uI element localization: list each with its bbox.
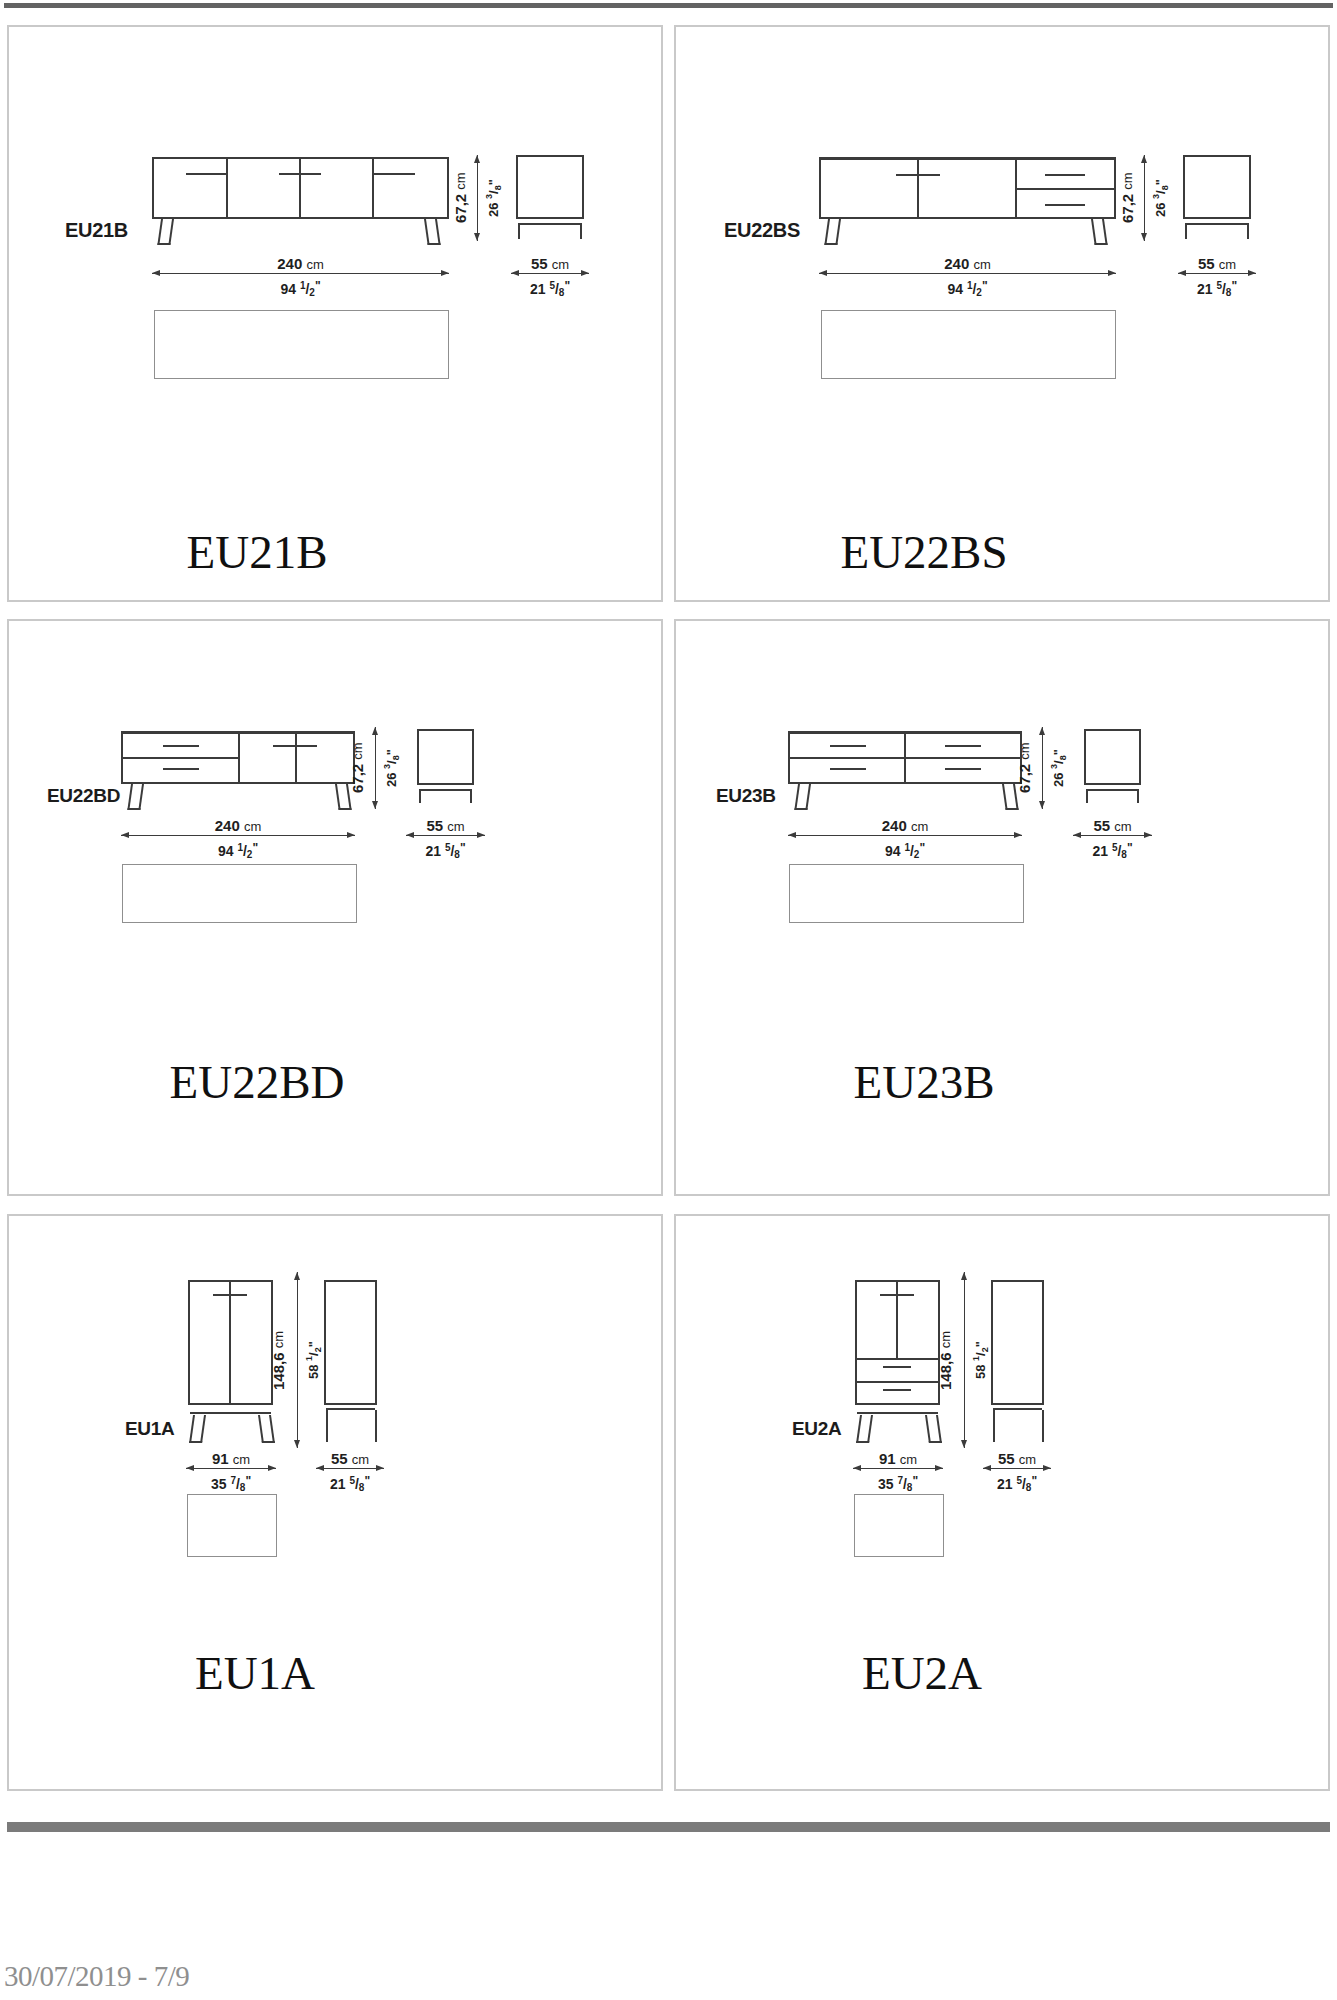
side-base-rail [518,223,582,225]
depth-dimension-inches: 21 5/8" [408,841,483,860]
door-handle [279,173,321,175]
frac-den: 8 [391,755,401,760]
height-unit: cm [453,173,468,190]
side-base-rail [1185,223,1249,225]
width-value: 240 [944,255,969,272]
side-leg [1185,225,1187,239]
frac-den: 8 [1058,755,1068,760]
drawer-divider [1017,188,1114,190]
inch-mark: " [1031,1474,1037,1488]
height-dimension-inches: 26 3/8" [1050,727,1068,809]
door-divider [372,159,374,217]
drawer-handle [883,1389,911,1391]
product-name: EU22BS [744,525,1104,579]
width-value-in: 94 [885,843,901,859]
depth-value: 55 [998,1450,1015,1467]
depth-dimension-inches: 21 5/8" [982,1474,1052,1493]
height-value: 67,2 [1119,194,1136,223]
side-view-drawing [991,1280,1044,1405]
height-dimension-inches: 26 3/8" [485,155,503,241]
height-value: 148,6 [937,1352,954,1390]
depth-value: 55 [331,1450,348,1467]
side-view-drawing [516,155,584,219]
top-view-outline [187,1494,277,1557]
furniture-leg [127,784,144,810]
frac-den: 8 [493,185,503,190]
drawer-handle [830,745,866,747]
drawer-divider [857,1358,938,1360]
base-rail [190,1412,271,1414]
depth-value: 55 [426,817,443,834]
width-dimension-line [186,1468,276,1469]
depth-dimension-line [406,835,485,836]
height-unit: cm [271,1330,286,1347]
drawer-handle [1045,204,1085,206]
width-unit: cm [244,819,261,834]
width-dimension-inches: 94 1/2" [121,841,355,860]
width-value-in: 94 [218,843,234,859]
height-unit: cm [1017,743,1032,760]
drawer-divider [790,757,1020,759]
frac-den: 2 [313,1347,323,1352]
door-handle [213,1294,247,1296]
depth-dimension-line [1178,273,1256,274]
drawer-divider [123,757,239,759]
height-value: 67,2 [1016,764,1033,793]
width-dimension-inches: 35 7/8" [853,1474,943,1493]
width-dimension-inches: 35 7/8" [186,1474,276,1493]
height-value: 67,2 [452,194,469,223]
spec-cell-eu21b: EU21B 67,2 cm 26 3/8" 240 cm 94 1/2" [7,25,663,602]
height-dimension-cm: 148,6 cm [938,1272,958,1448]
width-value: 91 [879,1450,896,1467]
depth-value-in: 21 [530,281,546,297]
width-dimension-cm: 240 cm [788,817,1022,834]
side-leg [375,1410,377,1442]
height-dimension-line [1042,727,1043,809]
height-dimension-line [297,1272,298,1448]
width-dimension-line [121,835,355,836]
base-rail [857,1412,938,1414]
inch-mark: " [245,1474,251,1488]
drawer-handle [883,1366,911,1368]
side-leg [326,1410,328,1442]
width-value-in: 94 [280,281,296,297]
height-dimension-cm: 67,2 cm [1017,727,1037,809]
depth-unit: cm [1114,819,1131,834]
width-unit: cm [911,819,928,834]
front-view-drawing [855,1280,940,1405]
depth-value-in: 21 [1092,843,1108,859]
side-leg [1086,791,1088,803]
frac-num: 3 [484,194,494,199]
width-dimension-inches: 94 1/2" [152,279,449,298]
height-dimension-line [375,727,376,809]
furniture-leg [424,219,441,245]
inch-mark: " [315,279,321,293]
front-view-drawing [152,157,449,219]
depth-value: 55 [1198,255,1215,272]
height-dimension-inches: 58 1/2" [972,1272,990,1448]
product-code-label: EU2A [792,1418,841,1440]
product-name: EU1A [75,1646,435,1700]
inch-mark: " [919,841,925,855]
footer-page-info: 30/07/2019 - 7/9 [4,1960,189,1993]
product-name: EU22BD [77,1055,437,1109]
front-view-drawing [188,1280,273,1405]
drawer-handle [945,745,981,747]
depth-dimension-inches: 21 5/8" [1075,841,1150,860]
height-dimension-line [1144,155,1145,241]
drawer-handle [1045,174,1085,176]
furniture-leg [1091,219,1108,245]
furniture-leg [794,784,811,810]
depth-dimension-cm: 55 cm [315,1450,385,1467]
width-value: 240 [215,817,240,834]
width-unit: cm [900,1452,917,1467]
width-dimension-line [819,273,1116,274]
depth-value-in: 21 [425,843,441,859]
depth-dimension-line [1073,835,1152,836]
inch-mark: " [1231,279,1237,293]
side-base-rail [1086,789,1139,791]
height-value-in: 26 [1051,773,1066,787]
drawer-handle [945,768,981,770]
frac-slash: / [1051,760,1066,764]
door-divider [229,1282,231,1403]
top-view-outline [154,310,449,379]
depth-dimension-line [316,1468,384,1469]
top-divider-bar [4,3,1333,8]
frac-den: 8 [1160,185,1170,190]
depth-value: 55 [1093,817,1110,834]
catalog-page: EU21B 67,2 cm 26 3/8" 240 cm 94 1/2" [0,0,1337,2000]
door-divider [917,160,919,217]
width-dimension-cm: 240 cm [152,255,449,272]
inch-mark: " [1051,749,1066,755]
door-handle [880,1294,914,1296]
frac-num: 1 [304,1356,314,1361]
inch-mark: " [364,1474,370,1488]
product-name: EU23B [744,1055,1104,1109]
spec-cell-eu23b: EU23B 67,2 cm 26 3/8" 240 cm 94 1/2" [674,619,1330,1196]
door-handle [186,173,227,175]
width-value: 240 [277,255,302,272]
depth-unit: cm [352,1452,369,1467]
width-dimension-inches: 94 1/2" [819,279,1116,298]
inch-mark: " [912,1474,918,1488]
height-value: 148,6 [270,1352,287,1390]
inch-mark: " [306,1341,321,1347]
width-value-in: 35 [211,1476,227,1492]
furniture-leg [157,219,174,245]
furniture-leg [856,1415,873,1443]
spec-cell-eu22bd: EU22BD 67,2 cm 26 3/8" 240 cm 94 1/2" [7,619,663,1196]
side-leg [518,225,520,239]
depth-dimension-cm: 55 cm [982,1450,1052,1467]
door-divider [295,734,297,782]
width-dimension-line [853,1468,943,1469]
product-code-label: EU23B [716,785,776,807]
frac-num: 3 [1049,764,1059,769]
height-unit: cm [938,1330,953,1347]
frac-slash: / [973,1352,988,1356]
height-value-in: 26 [1153,203,1168,217]
inch-mark: " [982,279,988,293]
product-code-label: EU1A [125,1418,174,1440]
depth-dimension-cm: 55 cm [513,255,587,272]
frac-slash: / [384,760,399,764]
side-leg [1247,225,1249,239]
depth-unit: cm [1219,257,1236,272]
height-value-in: 58 [973,1365,988,1379]
width-dimension-cm: 91 cm [186,1450,276,1467]
depth-dimension-inches: 21 5/8" [513,279,587,298]
product-code-label: EU22BS [724,219,800,242]
depth-value-in: 21 [330,1476,346,1492]
top-view-outline [789,864,1024,923]
drawer-handle [163,745,199,747]
width-dimension-line [152,273,449,274]
front-view-drawing [121,731,355,784]
height-value-in: 58 [306,1365,321,1379]
door-handle [374,173,415,175]
width-dimension-cm: 91 cm [853,1450,943,1467]
height-value-in: 26 [486,203,501,217]
spec-cell-eu22bs: EU22BS 67,2 cm 26 3/8" 240 cm 94 1/2" [674,25,1330,602]
furniture-leg [824,219,841,245]
side-view-drawing [417,729,474,785]
footer-divider-bar [7,1822,1330,1832]
door-handle [273,745,317,747]
front-view-drawing [788,731,1022,784]
side-view-drawing [1084,729,1141,785]
width-dimension-cm: 240 cm [819,255,1116,272]
width-unit: cm [233,1452,250,1467]
inch-mark: " [460,841,466,855]
depth-dimension-line [511,273,589,274]
width-value-in: 94 [947,281,963,297]
width-value: 91 [212,1450,229,1467]
product-name: EU21B [77,525,437,579]
height-dimension-cm: 67,2 cm [350,727,370,809]
height-dimension-inches: 58 1/2" [305,1272,323,1448]
depth-unit: cm [447,819,464,834]
width-dimension-inches: 94 1/2" [788,841,1022,860]
front-view-drawing [819,157,1116,219]
depth-value: 55 [531,255,548,272]
door-divider [226,159,228,217]
side-leg [470,791,472,803]
height-value: 67,2 [349,764,366,793]
depth-unit: cm [1019,1452,1036,1467]
side-view-drawing [1183,155,1251,219]
side-leg [993,1410,995,1442]
drawer-handle [830,768,866,770]
spec-cell-eu2a: EU2A 148,6 cm 58 1/2" 91 cm 35 7/8" [674,1214,1330,1791]
depth-dimension-inches: 21 5/8" [1180,279,1254,298]
side-view-drawing [324,1280,377,1405]
top-view-outline [854,1494,944,1557]
width-unit: cm [306,257,323,272]
depth-dimension-line [983,1468,1051,1469]
width-value-in: 35 [878,1476,894,1492]
top-view-outline [821,310,1116,379]
side-base-rail [326,1408,375,1410]
inch-mark: " [1153,179,1168,185]
door-handle [896,174,940,176]
product-code-label: EU21B [65,219,128,242]
inch-mark: " [486,179,501,185]
furniture-leg [189,1415,206,1443]
height-dimension-line [964,1272,965,1448]
product-code-label: EU22BD [47,785,120,807]
inch-mark: " [564,279,570,293]
width-dimension-line [788,835,1022,836]
height-dimension-line [477,155,478,241]
height-dimension-inches: 26 3/8" [1152,155,1170,241]
frac-num: 1 [971,1356,981,1361]
depth-dimension-cm: 55 cm [1075,817,1150,834]
depth-dimension-cm: 55 cm [408,817,483,834]
frac-den: 2 [980,1347,990,1352]
side-leg [1137,791,1139,803]
side-leg [419,791,421,803]
side-leg [1042,1410,1044,1442]
inch-mark: " [1127,841,1133,855]
height-unit: cm [350,743,365,760]
drawer-divider [857,1381,938,1383]
inch-mark: " [252,841,258,855]
inch-mark: " [384,749,399,755]
frac-slash: / [306,1352,321,1356]
depth-value-in: 21 [1197,281,1213,297]
height-dimension-inches: 26 3/8" [383,727,401,809]
height-unit: cm [1120,173,1135,190]
top-view-outline [122,864,357,923]
product-name: EU2A [742,1646,1102,1700]
side-leg [580,225,582,239]
inch-mark: " [973,1341,988,1347]
depth-dimension-inches: 21 5/8" [315,1474,385,1493]
depth-value-in: 21 [997,1476,1013,1492]
frac-num: 3 [382,764,392,769]
door-divider [238,734,240,782]
width-dimension-cm: 240 cm [121,817,355,834]
height-dimension-cm: 67,2 cm [1120,155,1140,241]
height-dimension-cm: 148,6 cm [271,1272,291,1448]
door-divider [299,159,301,217]
depth-dimension-cm: 55 cm [1180,255,1254,272]
spec-cell-eu1a: EU1A 148,6 cm 58 1/2" 91 cm 35 7/8" 55 c… [7,1214,663,1791]
side-base-rail [993,1408,1042,1410]
depth-unit: cm [552,257,569,272]
drawer-handle [163,768,199,770]
frac-num: 3 [1151,194,1161,199]
width-value: 240 [882,817,907,834]
height-value-in: 26 [384,773,399,787]
frac-slash: / [1153,190,1168,194]
width-unit: cm [973,257,990,272]
frac-slash: / [486,190,501,194]
height-dimension-cm: 67,2 cm [453,155,473,241]
side-base-rail [419,789,472,791]
